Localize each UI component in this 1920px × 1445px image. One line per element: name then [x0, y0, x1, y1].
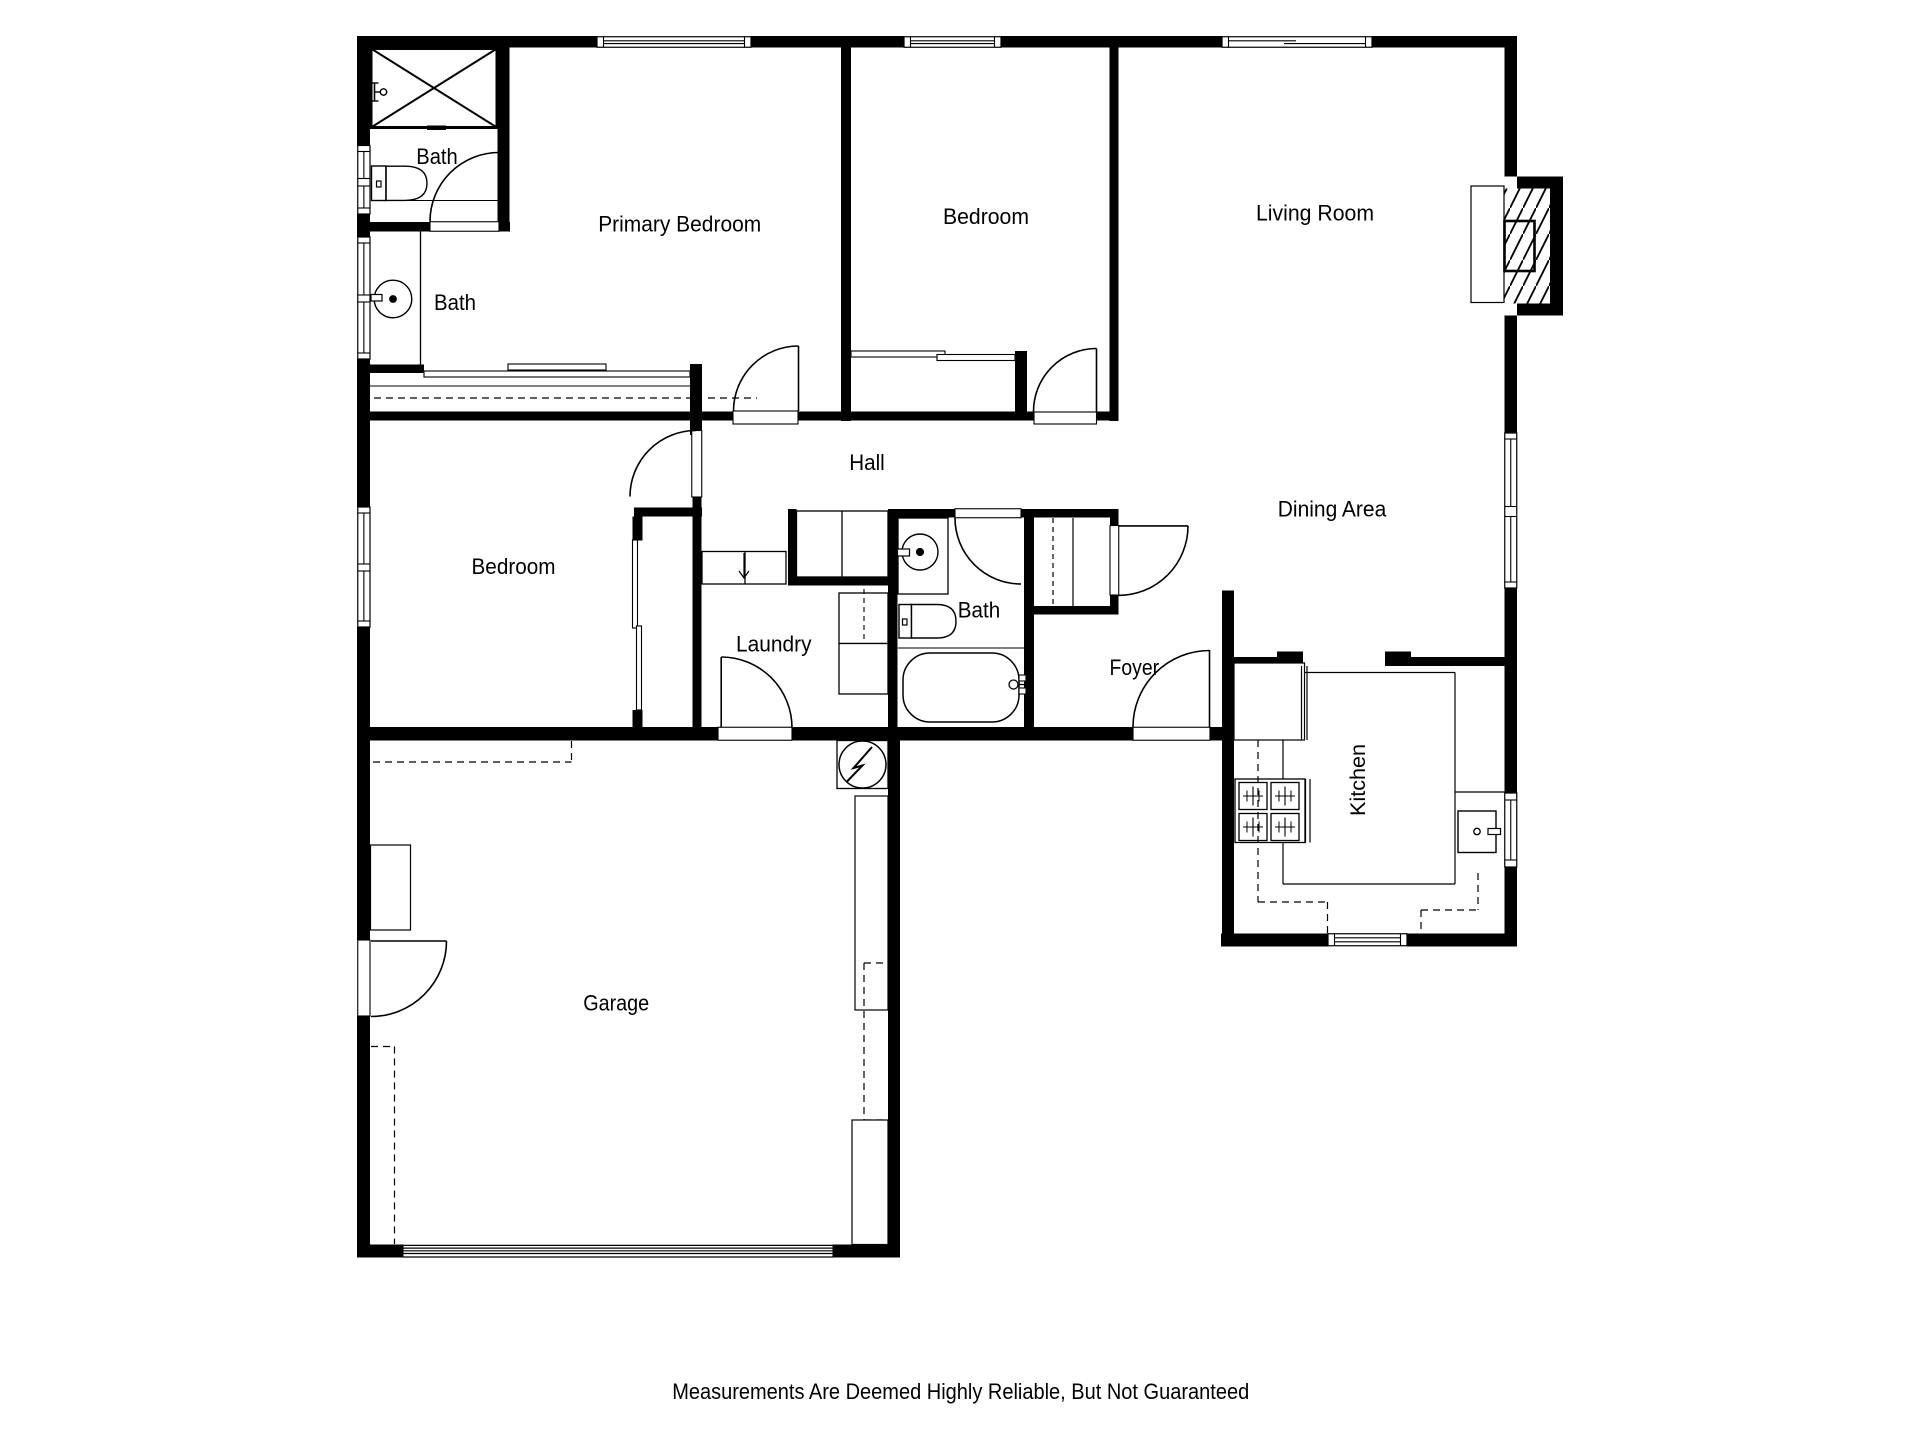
svg-text:Bath: Bath	[434, 290, 476, 315]
svg-text:Dining Area: Dining Area	[1278, 497, 1387, 522]
svg-text:Bath: Bath	[416, 144, 458, 169]
svg-text:Laundry: Laundry	[736, 631, 812, 656]
svg-text:Measurements Are Deemed Highly: Measurements Are Deemed Highly Reliable,…	[672, 1379, 1249, 1404]
svg-text:Hall: Hall	[849, 450, 885, 475]
svg-text:Kitchen: Kitchen	[1347, 744, 1370, 816]
svg-text:Foyer: Foyer	[1110, 655, 1160, 680]
svg-text:Bath: Bath	[958, 597, 1000, 622]
svg-text:Garage: Garage	[583, 991, 649, 1016]
svg-text:Living Room: Living Room	[1256, 201, 1374, 226]
svg-text:Bedroom: Bedroom	[472, 554, 556, 579]
svg-text:Bedroom: Bedroom	[943, 204, 1029, 229]
svg-text:Primary Bedroom: Primary Bedroom	[598, 212, 761, 237]
